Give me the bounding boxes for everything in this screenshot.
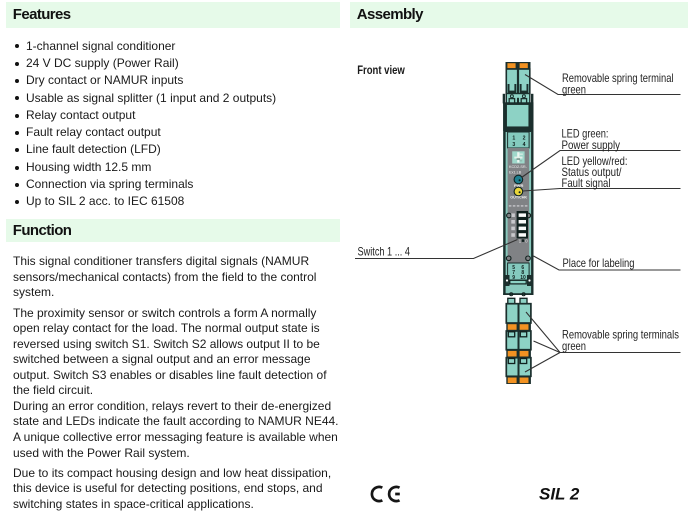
svg-text:Switch 1 ... 4: Switch 1 ... 4 (358, 244, 411, 258)
svg-text:3: 3 (512, 142, 515, 148)
svg-text:KCD2-SR-: KCD2-SR- (509, 165, 528, 169)
svg-text:green: green (562, 339, 586, 353)
svg-text:2: 2 (523, 136, 526, 142)
svg-text:Power supply: Power supply (562, 138, 621, 152)
svg-text:Ex1.LB: Ex1.LB (509, 171, 522, 175)
svg-text:Fault signal: Fault signal (562, 176, 611, 190)
svg-text:Front view: Front view (357, 63, 405, 77)
svg-text:1: 1 (512, 136, 515, 142)
svg-text:SIL 2: SIL 2 (539, 485, 580, 504)
svg-text:OUT/CHK: OUT/CHK (510, 196, 527, 200)
svg-text:Place for labeling: Place for labeling (563, 256, 635, 270)
svg-text:green: green (562, 82, 586, 96)
svg-text:4: 4 (523, 142, 526, 148)
